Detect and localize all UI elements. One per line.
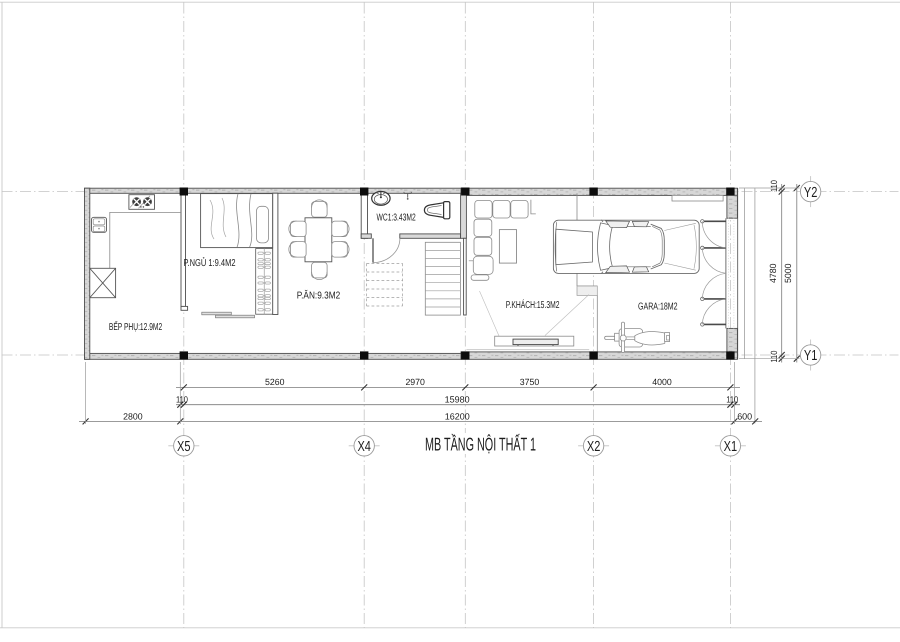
svg-text:4780: 4780 <box>768 263 778 283</box>
svg-text:Y1: Y1 <box>804 348 818 364</box>
svg-text:3750: 3750 <box>520 377 540 387</box>
svg-text:X4: X4 <box>357 439 371 455</box>
svg-text:P.NGỦ 1:9.4M2: P.NGỦ 1:9.4M2 <box>184 257 236 269</box>
svg-text:110: 110 <box>726 395 738 405</box>
svg-text:P.KHÁCH:15.3M2: P.KHÁCH:15.3M2 <box>506 299 560 311</box>
svg-text:2970: 2970 <box>405 377 425 387</box>
svg-text:Y2: Y2 <box>804 185 818 201</box>
svg-text:WC1:3.43M2: WC1:3.43M2 <box>377 212 416 223</box>
svg-text:110: 110 <box>769 180 779 192</box>
svg-text:2800: 2800 <box>123 411 143 421</box>
svg-text:X1: X1 <box>724 439 738 455</box>
svg-text:X2: X2 <box>587 439 601 455</box>
svg-text:5000: 5000 <box>783 264 793 284</box>
svg-text:MB TẦNG NỘI THẤT 1: MB TẦNG NỘI THẤT 1 <box>425 434 536 455</box>
svg-text:110: 110 <box>769 351 779 363</box>
svg-text:P.ĂN:9.3M2: P.ĂN:9.3M2 <box>297 290 341 302</box>
svg-text:BẾP PHỤ:12.9M2: BẾP PHỤ:12.9M2 <box>109 321 163 333</box>
svg-text:600: 600 <box>737 411 752 421</box>
svg-text:5260: 5260 <box>265 377 285 387</box>
svg-text:GARA:18M2: GARA:18M2 <box>638 301 678 312</box>
svg-text:X5: X5 <box>177 439 191 455</box>
svg-text:15980: 15980 <box>445 395 470 405</box>
svg-text:4000: 4000 <box>652 377 672 387</box>
svg-text:110: 110 <box>176 395 188 405</box>
svg-text:16200: 16200 <box>445 411 470 421</box>
